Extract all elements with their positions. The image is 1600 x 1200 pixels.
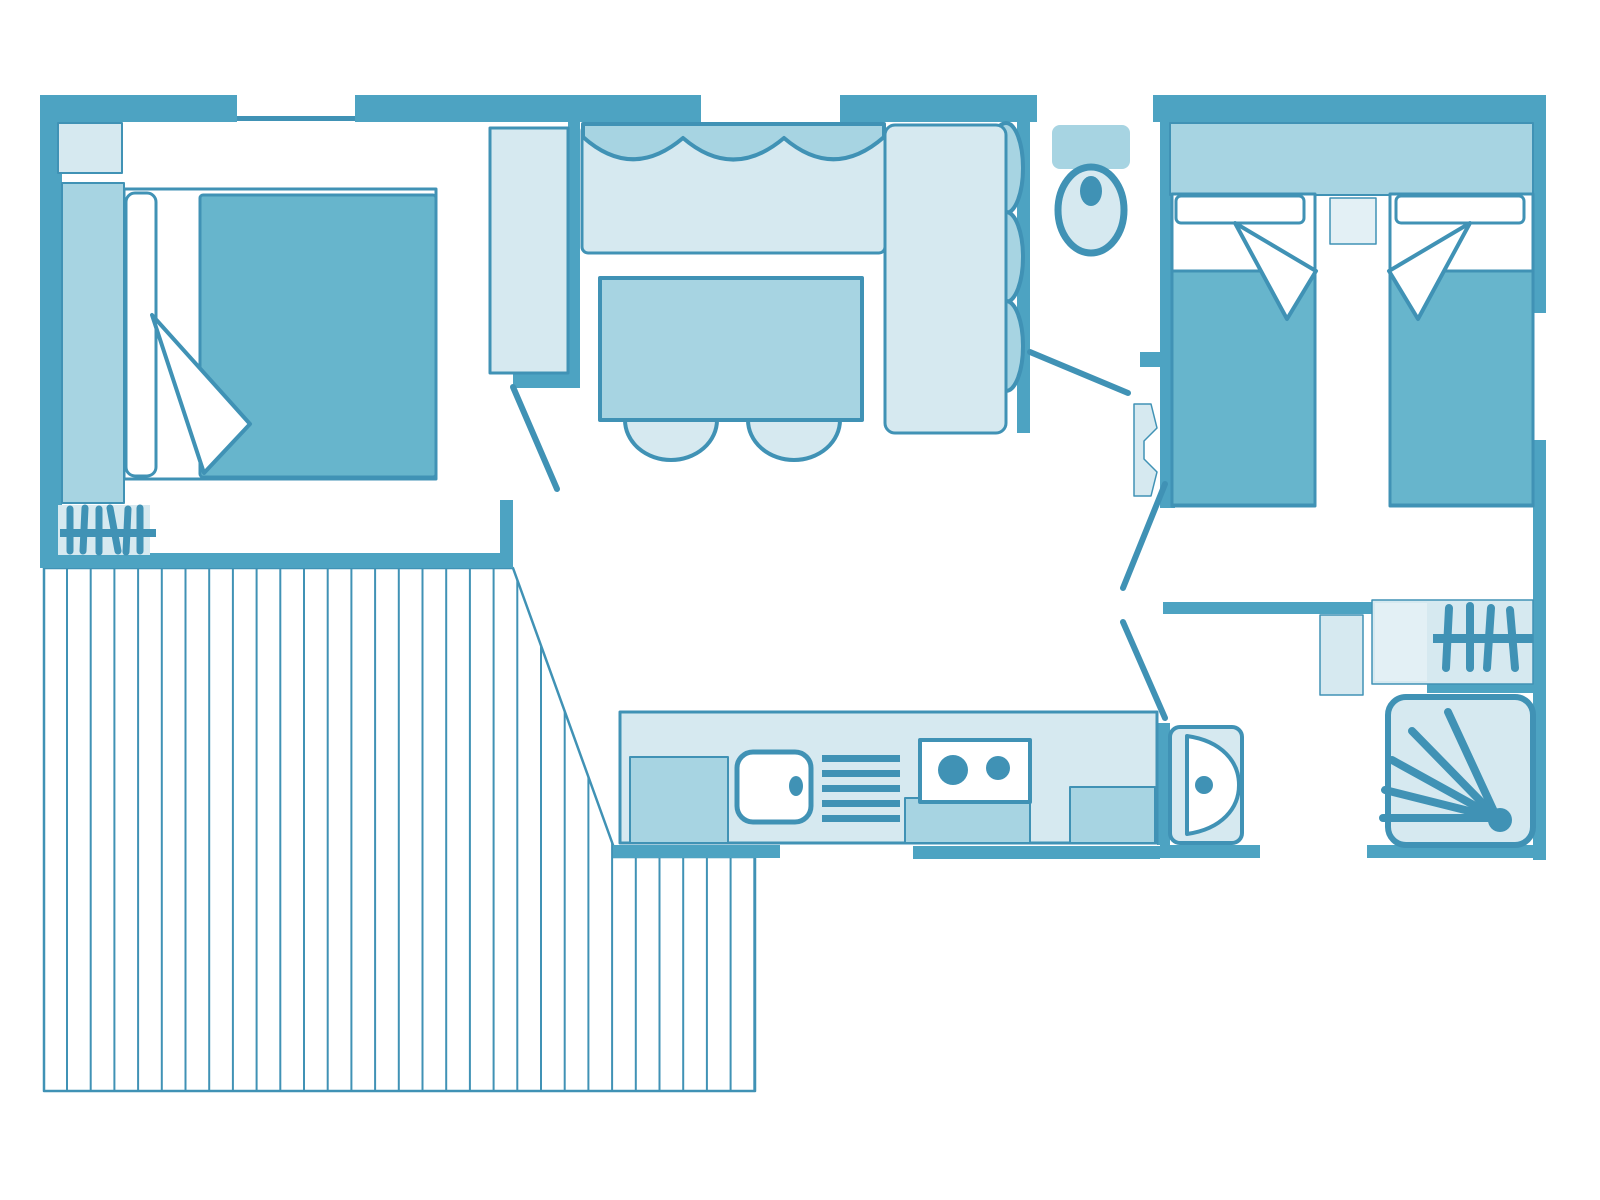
- wall-bedroom1-door-stub: [513, 373, 580, 388]
- stool-1: [625, 420, 717, 460]
- drainer-bar: [822, 815, 900, 822]
- cabinet-under-hob: [905, 798, 1030, 843]
- wall-top-1: [40, 95, 237, 122]
- sofa-right-bench: [885, 125, 1006, 433]
- tall-cabinet: [490, 128, 568, 373]
- burner-small: [986, 756, 1010, 780]
- twin-headboard: [1170, 123, 1533, 195]
- wall-bedroom1-corner: [500, 500, 513, 568]
- corner-shelf: [58, 123, 122, 173]
- drainer-bar: [822, 800, 900, 807]
- floor-plan-page: [0, 0, 1600, 1200]
- bed1-pillow: [1176, 196, 1304, 223]
- wardrobe-shelf: [1375, 603, 1427, 681]
- wall-bathroom-top: [1163, 602, 1372, 614]
- hob: [920, 740, 1030, 802]
- dining-table: [600, 278, 862, 420]
- wall-top-2: [355, 95, 701, 122]
- wall-top-4: [1153, 95, 1545, 122]
- drainer-bar: [822, 755, 900, 762]
- bedroom2-door-pivot: [1134, 404, 1157, 496]
- nightstand: [1330, 198, 1376, 244]
- toilet-tank: [1052, 125, 1130, 169]
- fridge-cabinet: [630, 757, 728, 843]
- kitchen: [620, 712, 1157, 843]
- twin-bedroom: [1123, 123, 1533, 588]
- bathroom-door-swing: [1123, 622, 1165, 718]
- shower-drain: [1488, 808, 1512, 832]
- wall-right-top: [1533, 95, 1546, 313]
- bedroom1-door-swing: [513, 387, 557, 489]
- wall-bedroom1-right: [568, 95, 580, 373]
- drainer-bar: [822, 785, 900, 792]
- wc-room: [1030, 125, 1130, 393]
- wardrobe-rail-bar: [1433, 634, 1533, 643]
- wc-door-swing: [1030, 352, 1128, 393]
- bedroom2-door-swing: [1123, 484, 1165, 588]
- stool-2: [748, 420, 840, 460]
- washbasin-drain: [1195, 776, 1213, 794]
- wall-bottom-bath-left: [1160, 845, 1260, 858]
- single-bed-2: [1389, 194, 1533, 506]
- master-bedroom: [58, 123, 568, 555]
- double-bed-headboard: [62, 183, 124, 503]
- sofa-top-cushions: [583, 124, 884, 160]
- drainer-bar: [822, 770, 900, 777]
- shower: [1383, 697, 1533, 845]
- kitchen-right-cabinet: [1070, 787, 1155, 843]
- sink-drain: [789, 776, 803, 796]
- wall-bedroom2-stub: [1140, 352, 1160, 367]
- washbasin-unit: [1170, 727, 1242, 843]
- double-bed-pillow: [126, 193, 156, 476]
- window-sill-bedroom1: [237, 116, 355, 121]
- bathroom: [1123, 600, 1533, 845]
- bed2-pillow: [1396, 196, 1524, 223]
- living-room: [582, 123, 1023, 460]
- bedroom1-clothes-rail: [58, 505, 156, 555]
- bathroom-wall-cabinet: [1320, 615, 1363, 695]
- rail-bar: [60, 529, 156, 537]
- floor-plan-drawing: [0, 0, 1600, 1200]
- wall-bottom-kitchen-right: [913, 846, 1160, 859]
- wall-top-3: [840, 95, 1037, 122]
- wall-bottom-kitchen-left: [613, 845, 780, 858]
- burner-large: [938, 755, 968, 785]
- wall-bedroom1-bottom: [40, 553, 513, 568]
- bathroom-wardrobe: [1372, 600, 1533, 684]
- toilet-water: [1080, 176, 1102, 206]
- single-bed-1: [1172, 194, 1316, 506]
